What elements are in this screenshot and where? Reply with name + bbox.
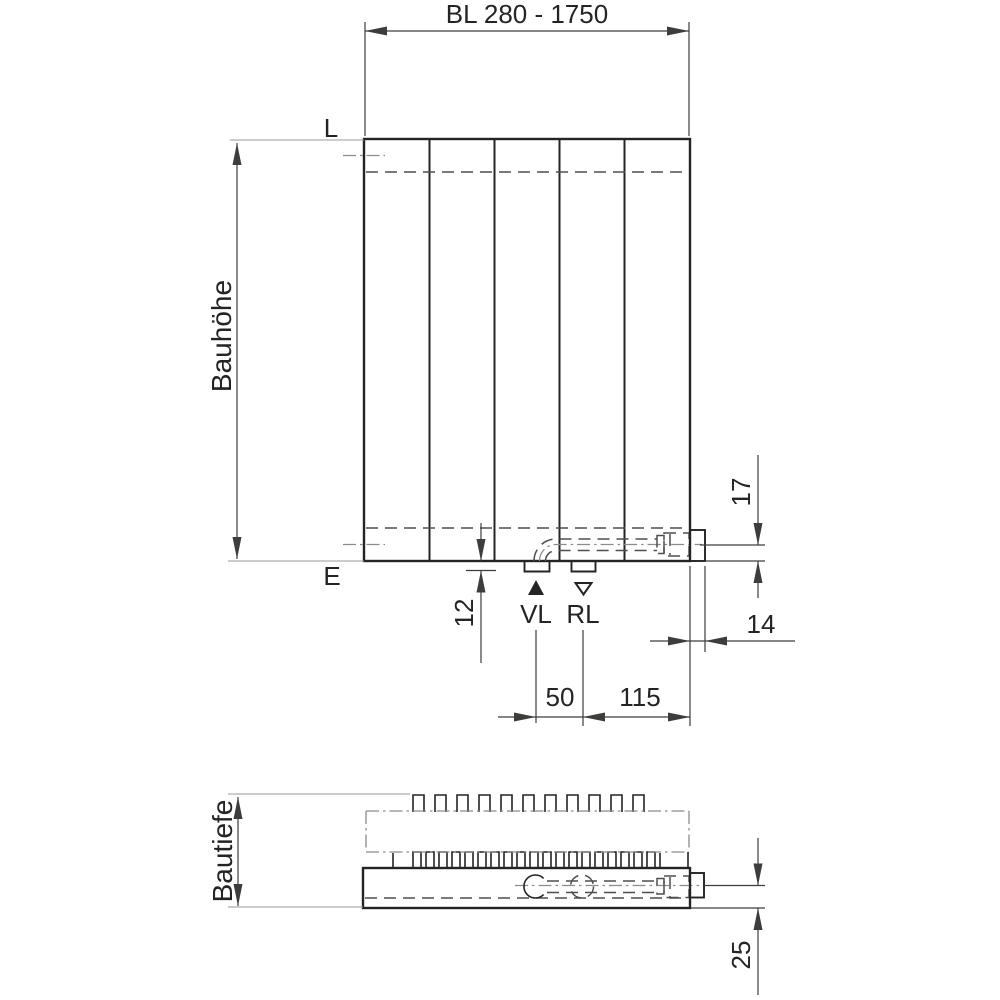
dim50-arrow-right-icon bbox=[514, 713, 536, 722]
bl-extension-lines bbox=[365, 22, 689, 136]
dim14-arrow-left-icon bbox=[705, 637, 727, 646]
level-markers: L E bbox=[228, 113, 364, 591]
technical-drawing-page: BL 280 - 1750 L E Bauhöhe 17 14 12 bbox=[0, 0, 1000, 1000]
bottom-fitting-body bbox=[664, 876, 689, 898]
bl-arrow-left-icon bbox=[365, 27, 387, 36]
dimension-50-115: 50 115 bbox=[498, 682, 690, 722]
dim14-arrow-right-icon bbox=[668, 637, 690, 646]
bottom-view bbox=[363, 795, 704, 908]
level-bottom-label: E bbox=[323, 561, 340, 591]
dim115-value: 115 bbox=[619, 682, 660, 712]
dim17-arrow-up-icon bbox=[754, 561, 763, 583]
dim12-arrow-down-icon bbox=[477, 539, 486, 561]
radiator-body-outline bbox=[364, 139, 690, 561]
dim17-value: 17 bbox=[726, 478, 756, 507]
pipe-centerline bbox=[540, 545, 703, 562]
top-fin-row bbox=[413, 795, 644, 812]
dimension-14: 14 bbox=[650, 566, 795, 726]
dim25-arrow-up-icon bbox=[754, 908, 763, 930]
dim14-value: 14 bbox=[747, 609, 776, 639]
return-flow-arrow-icon bbox=[576, 583, 592, 595]
convector-hidden-outline bbox=[366, 811, 689, 852]
return-pipe-section-icon bbox=[571, 875, 594, 898]
dim25-arrow-down-icon bbox=[754, 864, 763, 886]
bottom-fitting-flange bbox=[657, 879, 664, 895]
bauhoehe-label: Bauhöhe bbox=[206, 280, 237, 392]
radiator-dimensional-drawing: BL 280 - 1750 L E Bauhöhe 17 14 12 bbox=[0, 0, 1000, 1000]
bl-arrow-right-icon bbox=[667, 27, 689, 36]
bauhoehe-arrow-up-icon bbox=[233, 143, 242, 165]
dim12-value: 12 bbox=[449, 599, 479, 628]
dim17-arrow-down-icon bbox=[754, 523, 763, 545]
bautiefe-label: Bautiefe bbox=[207, 800, 238, 903]
bottom-fin-row bbox=[413, 852, 655, 868]
dimension-25: 25 bbox=[691, 838, 765, 995]
supply-label: VL bbox=[520, 599, 552, 629]
dimension-bl: BL 280 - 1750 bbox=[365, 0, 689, 136]
level-top-label: L bbox=[324, 113, 338, 143]
fin-row-ticks bbox=[393, 852, 688, 868]
return-stub bbox=[572, 561, 596, 572]
return-label: RL bbox=[566, 599, 599, 629]
dimension-bautiefe: Bautiefe bbox=[207, 794, 410, 907]
supply-stub bbox=[525, 561, 550, 572]
dim25-value: 25 bbox=[726, 941, 756, 970]
dimension-12: 12 bbox=[449, 523, 496, 663]
dim115-arrow-left-icon bbox=[583, 713, 605, 722]
panel-divider-lines bbox=[430, 139, 625, 561]
supply-flow-arrow-icon bbox=[528, 580, 544, 595]
dim115-arrow-right-icon bbox=[668, 713, 690, 722]
front-panel-outline bbox=[363, 868, 690, 908]
bauhoehe-arrow-down-icon bbox=[233, 537, 242, 559]
supply-pipe-section-icon bbox=[524, 875, 544, 898]
dimension-bauhoehe: Bauhöhe bbox=[206, 143, 242, 559]
bautiefe-extension-lines bbox=[228, 794, 410, 907]
dim12-arrow-up-icon bbox=[477, 571, 486, 593]
front-view bbox=[343, 139, 705, 572]
pipe-bend-inner bbox=[546, 551, 658, 562]
bl-range-label: BL 280 - 1750 bbox=[446, 0, 608, 29]
bottom-pipe-lines bbox=[547, 881, 657, 893]
dim17-extension-lines bbox=[700, 545, 765, 561]
dim14-extension-lines bbox=[690, 566, 705, 726]
dim50-value: 50 bbox=[546, 682, 575, 712]
dimension-17: 17 bbox=[700, 455, 765, 598]
